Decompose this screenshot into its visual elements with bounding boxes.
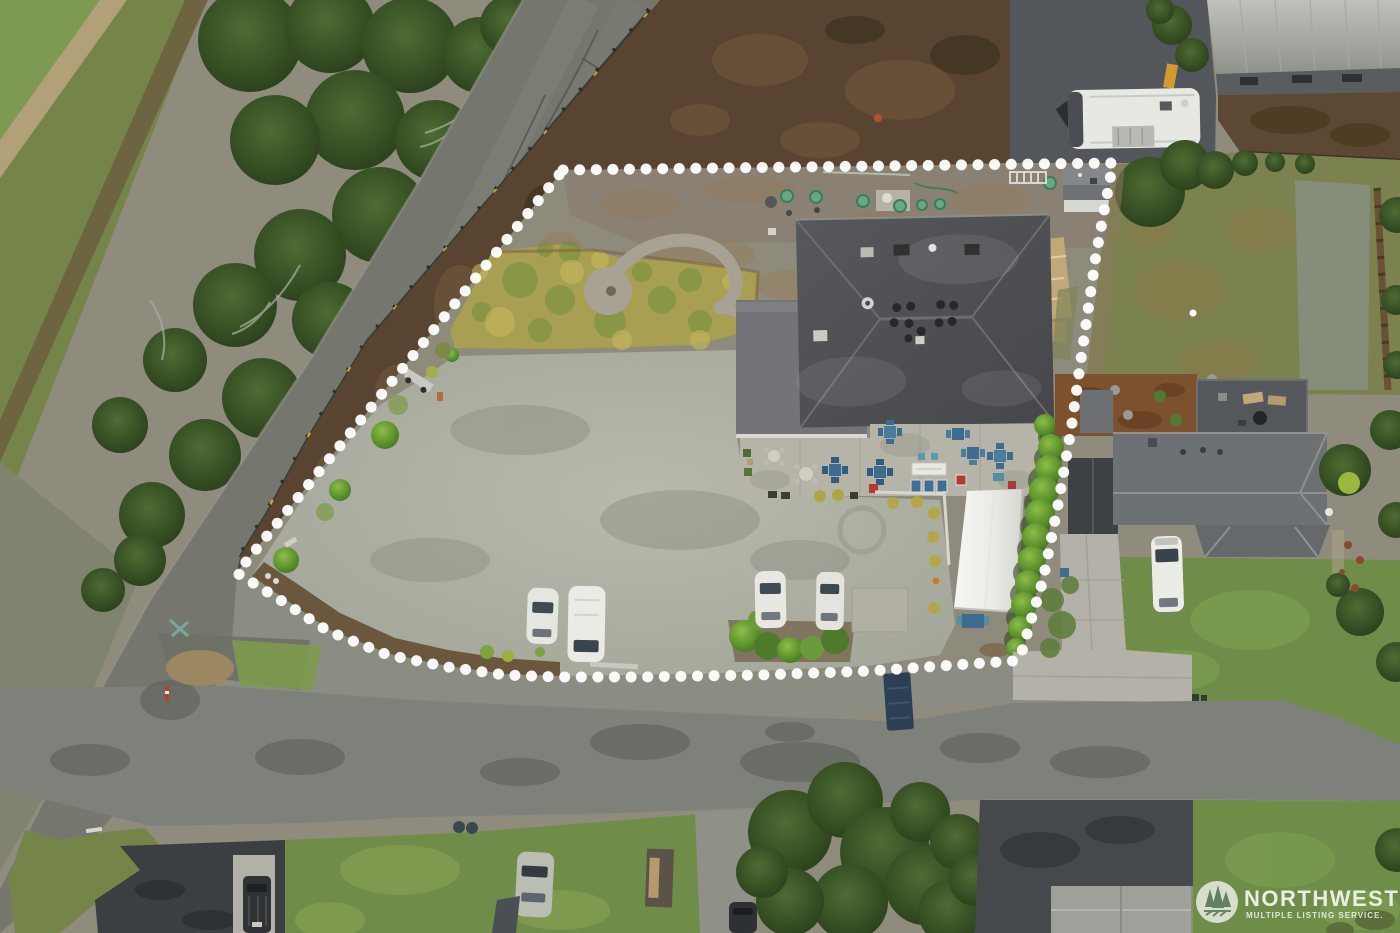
white-car-3 <box>755 571 787 629</box>
neighbor-house-roof <box>1113 433 1333 557</box>
blue-loungers <box>911 480 947 492</box>
dark-car <box>729 902 757 933</box>
small-shed <box>645 849 674 908</box>
trash-cans <box>453 821 478 834</box>
aerial-photo: NORTHWEST MULTIPLE LISTING SERVICE. <box>0 0 1400 933</box>
concrete-pad <box>852 588 908 632</box>
outbuilding-roof <box>1080 390 1113 433</box>
neighbor-backyard <box>1085 140 1400 395</box>
satellite-dish <box>1325 508 1333 516</box>
neighbor-van <box>1151 535 1185 612</box>
mls-watermark: NORTHWEST MULTIPLE LISTING SERVICE. <box>1196 881 1399 923</box>
dirt-island <box>166 650 234 686</box>
top-right-area <box>1010 0 1400 168</box>
wet-grass-patch <box>1295 180 1370 390</box>
bottom-house-roof <box>1051 886 1191 933</box>
watermark-subtitle: MULTIPLE LISTING SERVICE. <box>1246 911 1384 920</box>
main-building-roof <box>793 214 1054 427</box>
dumpster <box>883 672 914 731</box>
sage-car <box>514 851 554 918</box>
white-car-4 <box>815 572 844 630</box>
grill <box>1253 411 1267 425</box>
white-car-1 <box>526 587 559 644</box>
watermark-brand: NORTHWEST <box>1244 886 1399 911</box>
red-marker <box>874 114 882 122</box>
white-van <box>567 586 605 663</box>
dark-suv <box>243 876 271 933</box>
ball-on-lawn <box>1190 310 1197 317</box>
warehouse-roof <box>1207 0 1400 74</box>
backyard-deck <box>1197 380 1307 438</box>
rv-trailer <box>1056 88 1201 150</box>
